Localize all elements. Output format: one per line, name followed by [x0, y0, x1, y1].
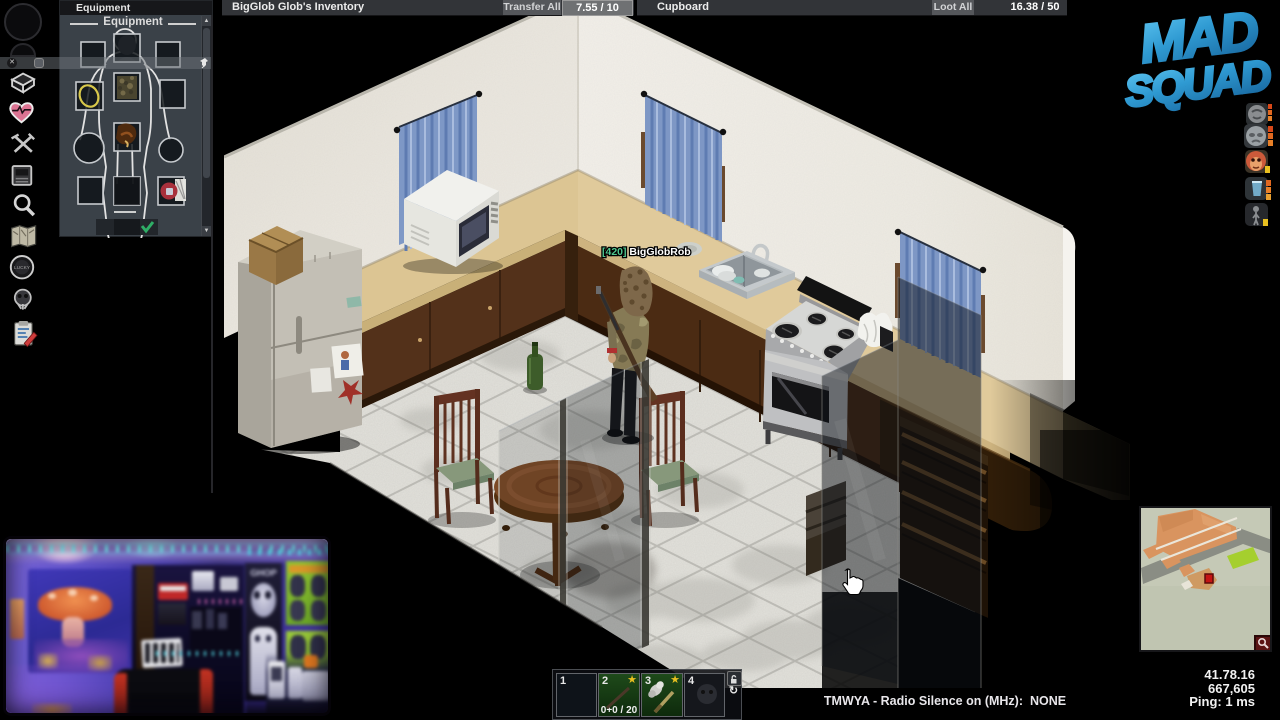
svg-text:LUCKY: LUCKY — [14, 265, 31, 271]
svg-text:[420] BigGlobRob: [420] BigGlobRob — [602, 246, 691, 258]
